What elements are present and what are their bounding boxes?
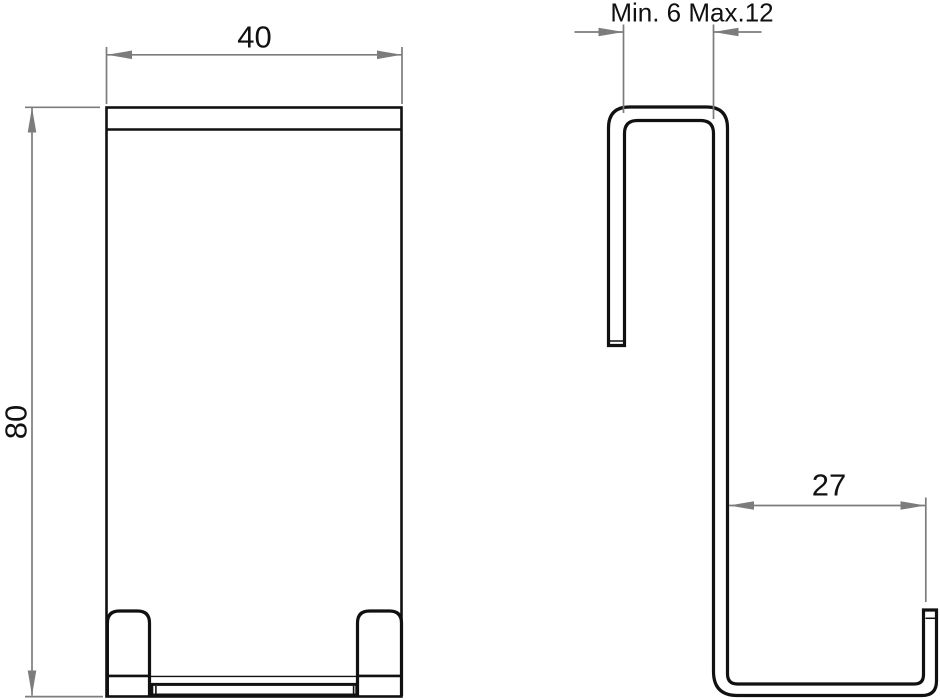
front-view-left-tab	[107, 611, 149, 696]
dimension-arrowheads	[28, 28, 926, 696]
arrowhead-down	[28, 671, 37, 696]
arrowhead-right	[599, 28, 624, 37]
dimension-label-height: 80	[0, 405, 34, 439]
arrowhead-left	[107, 51, 132, 60]
technical-drawing-canvas: 40 80 Min. 6 Max.12 27	[0, 0, 940, 700]
front-view-outline	[107, 108, 402, 697]
arrowhead-right	[377, 51, 402, 60]
hook-profile-outline	[609, 107, 937, 696]
dimension-opening	[575, 25, 762, 120]
arrowhead-right	[901, 501, 926, 510]
front-view-right-tab	[358, 611, 402, 696]
dimension-label-width: 40	[237, 20, 271, 55]
dimension-width	[107, 47, 403, 104]
dimension-lines	[25, 25, 926, 697]
object-lines	[107, 107, 937, 697]
front-view-bottom-bar	[152, 684, 357, 695]
dimension-labels: 40 80 Min. 6 Max.12 27	[0, 0, 846, 503]
arrowhead-left	[714, 28, 739, 37]
dimension-label-opening: Min. 6 Max.12	[610, 0, 773, 28]
side-view	[609, 107, 937, 696]
dimension-arm-length	[729, 498, 926, 603]
dimension-height	[25, 107, 103, 696]
front-view	[107, 108, 402, 697]
dimension-label-arm-length: 27	[812, 468, 846, 503]
hook-technical-drawing: 40 80 Min. 6 Max.12 27	[0, 0, 940, 700]
arrowhead-up	[28, 108, 37, 133]
arrowhead-left	[729, 501, 754, 510]
